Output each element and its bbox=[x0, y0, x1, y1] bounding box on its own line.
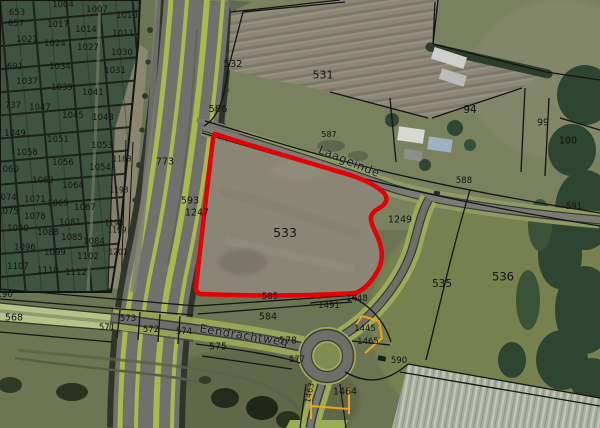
map-root[interactable]: 6531004100710106571017101410111021102410… bbox=[0, 0, 600, 428]
aerial-map-canvas bbox=[0, 0, 600, 428]
roundabout bbox=[298, 327, 356, 385]
